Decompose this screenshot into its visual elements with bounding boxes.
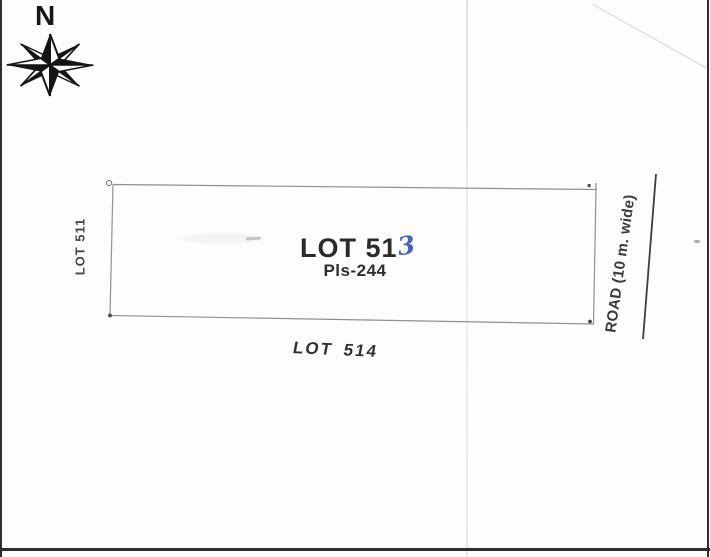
scanned-sketch-plan: N LOT — [0, 0, 710, 557]
corner-marker-bottom-right — [588, 320, 592, 324]
page-edge-left — [0, 0, 2, 557]
compass-north-label: N — [35, 0, 55, 32]
lot-number-handwritten-digit: 3 — [395, 230, 417, 261]
scan-crease-diagonal — [592, 4, 710, 70]
adjacent-lot-west-label: LOT 511 — [73, 207, 88, 287]
road-edge-line — [643, 174, 656, 339]
compass-rose-icon — [4, 32, 96, 98]
lot-number-printed: LOT 51 — [300, 233, 398, 263]
lot-label: LOT 513 — [300, 233, 416, 264]
corner-marker-bottom-left — [108, 314, 112, 318]
corner-marker-top-right — [588, 184, 591, 187]
page-edge-right — [707, 0, 709, 557]
plan-number-label: Pls-244 — [300, 261, 410, 281]
adjacent-lot-south-label: LOT 514 — [291, 338, 380, 362]
corner-marker-top-left — [106, 180, 111, 185]
page-edge-bottom — [0, 548, 710, 551]
compass-rose: N — [2, 4, 98, 100]
